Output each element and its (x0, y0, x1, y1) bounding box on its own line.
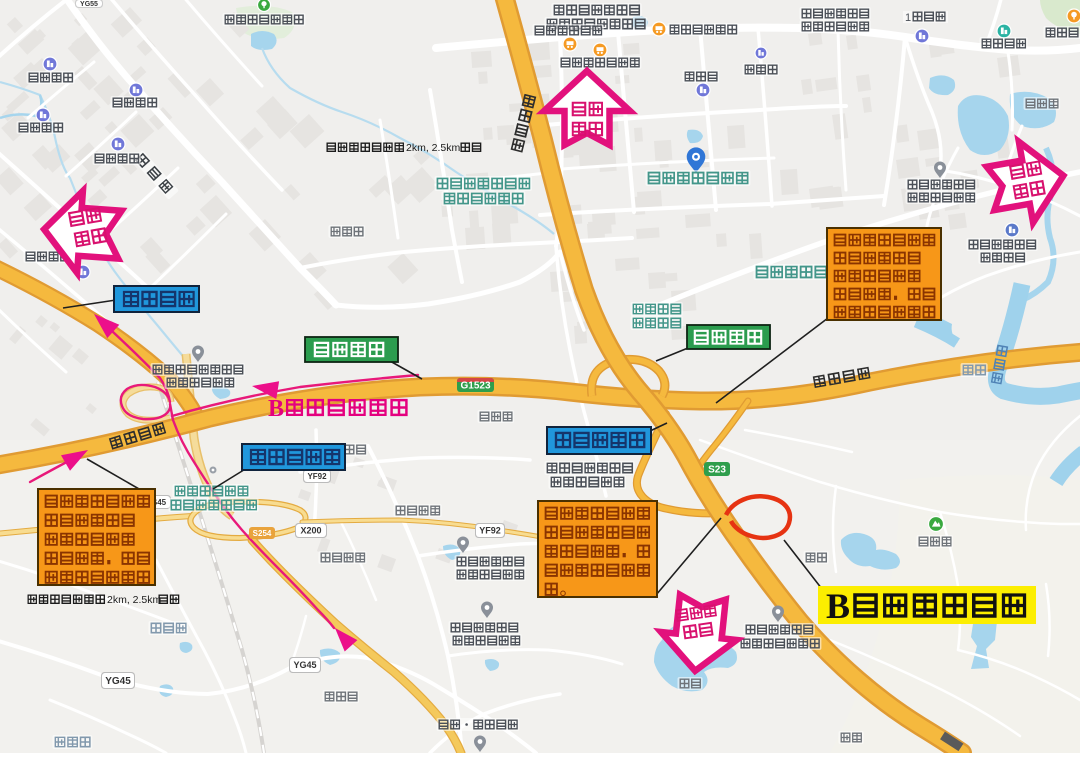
svg-text:YF92: YF92 (307, 472, 327, 481)
svg-text:YG55: YG55 (80, 1, 98, 8)
svg-text:G1523: G1523 (460, 381, 490, 392)
svg-text:S254: S254 (253, 529, 272, 538)
svg-text:B: B (268, 396, 284, 422)
svg-text:2km, 2.5km: 2km, 2.5km (406, 142, 461, 154)
svg-text:YG45: YG45 (105, 676, 131, 687)
svg-text:B: B (826, 586, 850, 626)
svg-text:S23: S23 (708, 465, 726, 476)
svg-text:X200: X200 (300, 526, 321, 536)
svg-text:YF92: YF92 (479, 526, 501, 536)
svg-text:1: 1 (905, 12, 911, 24)
svg-text:2km, 2.5km: 2km, 2.5km (107, 594, 162, 606)
svg-text:YG45: YG45 (293, 660, 316, 670)
